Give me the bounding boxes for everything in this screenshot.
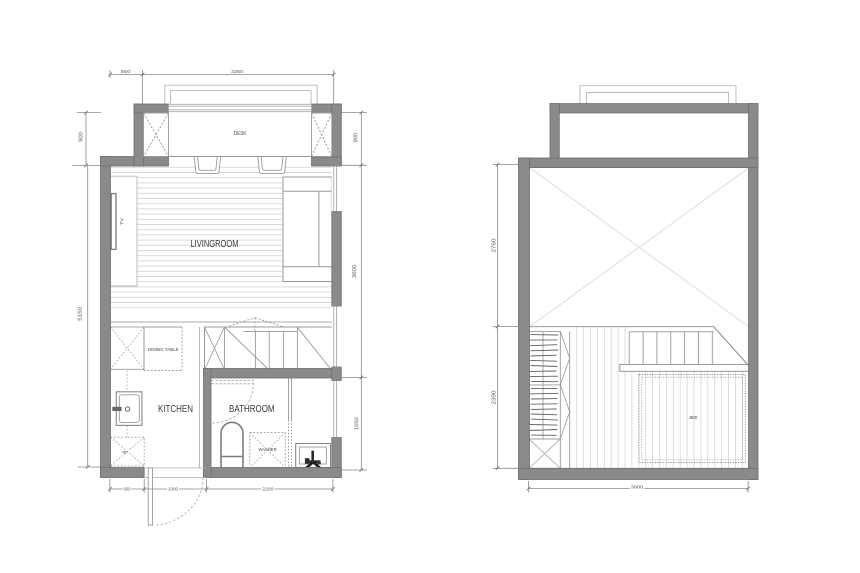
svg-text:KITCHEN: KITCHEN	[158, 404, 193, 415]
svg-text:DINING TABLE: DINING TABLE	[148, 347, 179, 352]
svg-text:5150: 5150	[78, 307, 84, 321]
svg-text:2390: 2390	[491, 390, 497, 404]
svg-text:3800: 3800	[631, 484, 644, 489]
svg-text:2200: 2200	[262, 486, 274, 491]
svg-text:3600: 3600	[352, 264, 358, 278]
svg-text:550: 550	[121, 69, 131, 75]
svg-text:RF: RF	[123, 451, 129, 455]
svg-text:900: 900	[353, 133, 359, 143]
svg-text:2760: 2760	[491, 238, 497, 252]
svg-text:900: 900	[78, 132, 84, 142]
svg-text:LIVINGROOM: LIVINGROOM	[191, 239, 239, 250]
svg-text:BATHROOM: BATHROOM	[229, 404, 275, 415]
svg-text:600: 600	[124, 486, 131, 491]
svg-text:DESK: DESK	[234, 131, 247, 137]
svg-text:BED: BED	[690, 415, 698, 420]
svg-text:TV: TV	[119, 218, 124, 225]
svg-text:3250: 3250	[231, 69, 243, 75]
svg-text:1550: 1550	[354, 417, 360, 430]
svg-text:WASHER: WASHER	[258, 447, 276, 452]
svg-text:1000: 1000	[168, 486, 178, 491]
